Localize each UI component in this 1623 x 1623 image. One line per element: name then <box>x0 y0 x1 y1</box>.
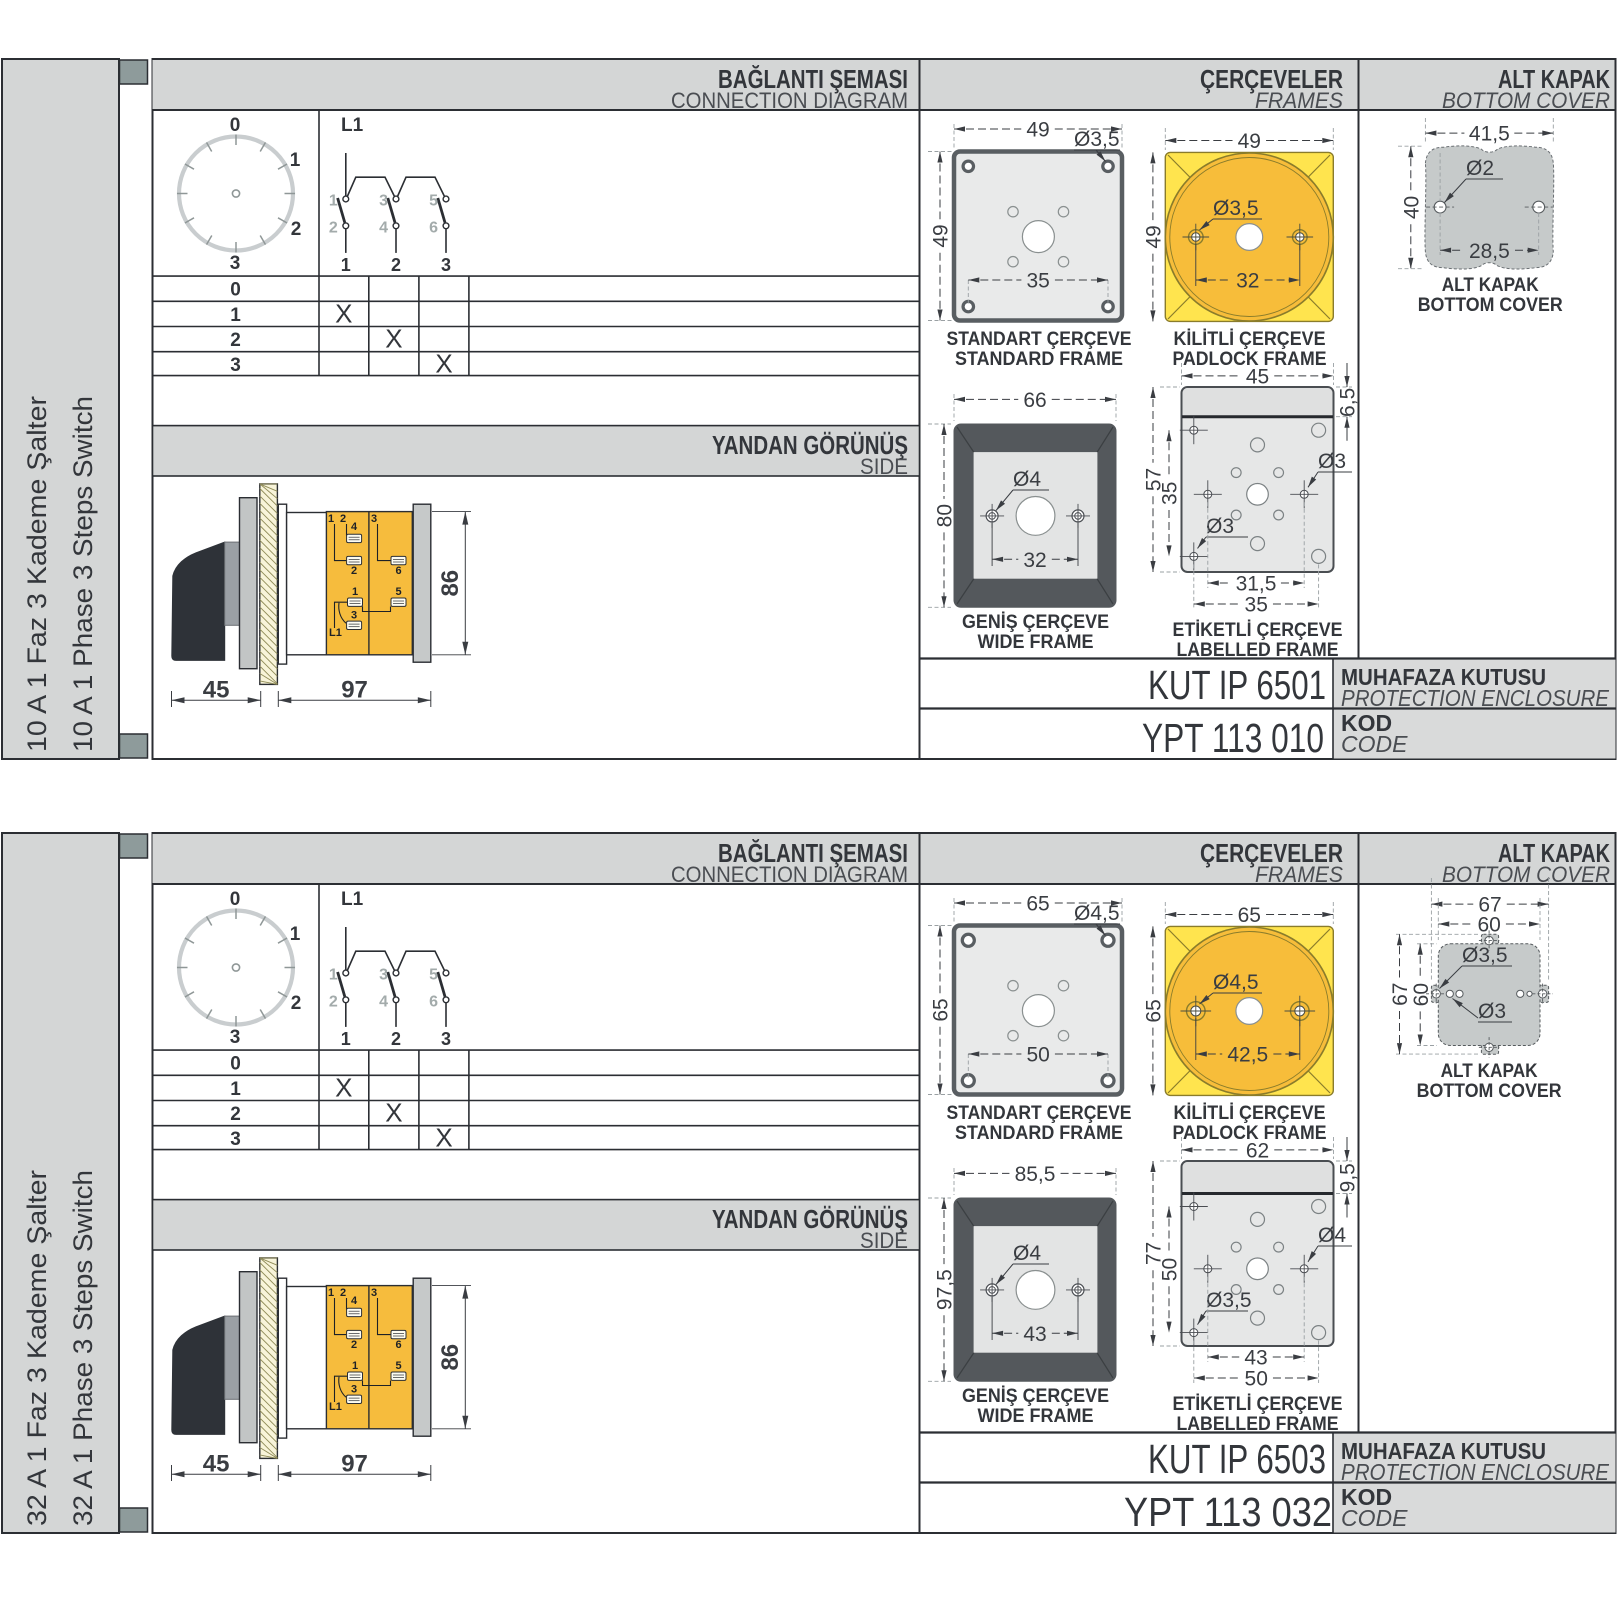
svg-text:3: 3 <box>230 355 241 376</box>
svg-text:Ø4,5: Ø4,5 <box>1213 971 1259 994</box>
svg-text:1: 1 <box>341 255 351 275</box>
svg-text:CONNECTION DIAGRAM: CONNECTION DIAGRAM <box>671 88 908 113</box>
svg-text:STANDARD FRAME: STANDARD FRAME <box>955 349 1123 370</box>
svg-text:2: 2 <box>329 219 338 236</box>
svg-text:4: 4 <box>351 1295 358 1307</box>
svg-text:KİLİTLİ ÇERÇEVE: KİLİTLİ ÇERÇEVE <box>1174 1103 1326 1124</box>
svg-text:0: 0 <box>230 115 241 136</box>
svg-text:1: 1 <box>328 1287 334 1299</box>
svg-text:40: 40 <box>1400 196 1423 219</box>
svg-text:1: 1 <box>352 1360 358 1372</box>
svg-text:2: 2 <box>230 330 241 351</box>
svg-text:GENİŞ ÇERÇEVE: GENİŞ ÇERÇEVE <box>962 1386 1109 1407</box>
svg-text:Ø3,5: Ø3,5 <box>1462 944 1508 967</box>
svg-text:43: 43 <box>1023 1323 1046 1346</box>
svg-text:1: 1 <box>341 1029 351 1049</box>
svg-text:32: 32 <box>1236 270 1259 293</box>
svg-text:3: 3 <box>371 1287 377 1299</box>
svg-text:1: 1 <box>290 150 301 171</box>
svg-text:0: 0 <box>230 889 241 910</box>
svg-text:35: 35 <box>1245 594 1268 617</box>
svg-text:2: 2 <box>329 993 338 1010</box>
svg-text:6: 6 <box>429 993 438 1010</box>
svg-text:SIDE: SIDE <box>860 1228 908 1253</box>
svg-text:Ø3: Ø3 <box>1478 1000 1506 1023</box>
svg-text:0: 0 <box>230 1054 241 1075</box>
svg-text:6,5: 6,5 <box>1337 388 1360 417</box>
svg-text:Ø2: Ø2 <box>1466 157 1494 180</box>
svg-text:Ø3: Ø3 <box>1318 450 1346 473</box>
svg-text:62: 62 <box>1246 1139 1269 1162</box>
svg-text:STANDART ÇERÇEVE: STANDART ÇERÇEVE <box>947 329 1132 350</box>
svg-text:KUT IP 6501: KUT IP 6501 <box>1148 662 1326 708</box>
svg-text:4: 4 <box>379 219 388 236</box>
svg-text:BOTTOM COVER: BOTTOM COVER <box>1418 295 1563 316</box>
svg-text:49: 49 <box>1026 119 1049 142</box>
svg-text:3: 3 <box>441 255 451 275</box>
svg-text:32: 32 <box>1023 549 1046 572</box>
svg-text:65: 65 <box>930 998 953 1021</box>
svg-text:50: 50 <box>1159 1258 1182 1281</box>
svg-text:5: 5 <box>429 193 438 210</box>
svg-text:ETİKETLİ ÇERÇEVE: ETİKETLİ ÇERÇEVE <box>1173 620 1343 641</box>
svg-text:2: 2 <box>291 219 302 240</box>
svg-text:WIDE FRAME: WIDE FRAME <box>978 632 1094 653</box>
svg-text:2: 2 <box>230 1104 241 1125</box>
svg-text:WIDE FRAME: WIDE FRAME <box>978 1406 1094 1427</box>
svg-text:X: X <box>435 1123 452 1153</box>
svg-text:49: 49 <box>1238 130 1261 153</box>
svg-text:97: 97 <box>341 1451 368 1478</box>
svg-text:97: 97 <box>341 677 368 704</box>
svg-text:BOTTOM COVER: BOTTOM COVER <box>1442 862 1610 887</box>
svg-text:1: 1 <box>290 924 301 945</box>
svg-text:67: 67 <box>1389 983 1412 1006</box>
svg-text:4: 4 <box>351 521 358 533</box>
svg-text:L1: L1 <box>329 627 342 639</box>
svg-text:45: 45 <box>203 677 230 704</box>
svg-text:10 A 1 Faz 3 Kademe Şalter: 10 A 1 Faz 3 Kademe Şalter <box>22 396 52 752</box>
svg-text:42,5: 42,5 <box>1227 1044 1268 1067</box>
svg-text:BOTTOM COVER: BOTTOM COVER <box>1442 88 1610 113</box>
svg-text:50: 50 <box>1026 1044 1049 1067</box>
svg-text:31,5: 31,5 <box>1236 573 1277 596</box>
svg-text:1: 1 <box>230 305 241 326</box>
svg-text:Ø4: Ø4 <box>1318 1224 1346 1247</box>
svg-text:L1: L1 <box>341 115 364 136</box>
svg-text:80: 80 <box>934 504 957 527</box>
svg-text:35: 35 <box>1026 270 1049 293</box>
svg-text:45: 45 <box>1246 365 1269 388</box>
svg-text:Ø4: Ø4 <box>1013 468 1041 491</box>
svg-text:4: 4 <box>379 993 388 1010</box>
svg-text:2: 2 <box>391 1029 401 1049</box>
svg-text:CODE: CODE <box>1341 731 1408 757</box>
svg-text:KUT IP 6503: KUT IP 6503 <box>1148 1436 1326 1482</box>
svg-text:65: 65 <box>1238 904 1261 927</box>
svg-text:60: 60 <box>1477 914 1500 937</box>
svg-text:PROTECTION ENCLOSURE: PROTECTION ENCLOSURE <box>1341 1459 1610 1485</box>
svg-text:2: 2 <box>351 1339 357 1351</box>
svg-text:Ø4,5: Ø4,5 <box>1074 902 1120 925</box>
svg-text:9,5: 9,5 <box>1337 1163 1360 1192</box>
svg-text:2: 2 <box>351 565 357 577</box>
svg-text:6: 6 <box>395 565 401 577</box>
svg-text:50: 50 <box>1245 1368 1268 1391</box>
svg-text:32 A 1 Faz 3 Kademe Şalter: 32 A 1 Faz 3 Kademe Şalter <box>22 1170 52 1526</box>
svg-text:L1: L1 <box>341 889 364 910</box>
svg-text:2: 2 <box>391 255 401 275</box>
svg-text:5: 5 <box>395 586 401 598</box>
svg-text:49: 49 <box>1142 225 1165 248</box>
svg-text:2: 2 <box>340 513 346 525</box>
svg-text:PROTECTION ENCLOSURE: PROTECTION ENCLOSURE <box>1341 685 1610 711</box>
svg-text:1: 1 <box>230 1079 241 1100</box>
svg-text:Ø3,5: Ø3,5 <box>1074 128 1120 151</box>
svg-text:ALT KAPAK: ALT KAPAK <box>1442 275 1539 296</box>
svg-text:6: 6 <box>395 1339 401 1351</box>
svg-text:5: 5 <box>429 967 438 984</box>
svg-text:X: X <box>385 324 402 354</box>
svg-text:65: 65 <box>1142 999 1165 1022</box>
svg-text:YPT 113 032: YPT 113 032 <box>1124 1489 1332 1534</box>
svg-text:Ø3: Ø3 <box>1206 515 1234 538</box>
svg-text:60: 60 <box>1410 983 1433 1006</box>
svg-text:85,5: 85,5 <box>1015 1163 1056 1186</box>
svg-text:6: 6 <box>429 219 438 236</box>
svg-text:10 A 1 Phase 3 Steps Switch: 10 A 1 Phase 3 Steps Switch <box>68 396 98 752</box>
svg-text:1: 1 <box>329 967 338 984</box>
svg-text:97,5: 97,5 <box>934 1269 957 1310</box>
svg-text:X: X <box>335 299 352 329</box>
svg-text:65: 65 <box>1026 893 1049 916</box>
svg-text:GENİŞ ÇERÇEVE: GENİŞ ÇERÇEVE <box>962 612 1109 633</box>
svg-text:X: X <box>335 1073 352 1103</box>
svg-text:45: 45 <box>203 1451 230 1478</box>
svg-text:Ø3,5: Ø3,5 <box>1206 1289 1252 1312</box>
svg-text:FRAMES: FRAMES <box>1255 88 1343 113</box>
svg-text:3: 3 <box>230 253 241 274</box>
svg-text:3: 3 <box>351 610 357 622</box>
svg-text:2: 2 <box>291 993 302 1014</box>
svg-text:3: 3 <box>371 513 377 525</box>
svg-text:0: 0 <box>230 280 241 301</box>
svg-text:32 A 1 Phase 3 Steps Switch: 32 A 1 Phase 3 Steps Switch <box>68 1170 98 1526</box>
svg-text:X: X <box>435 349 452 379</box>
svg-text:X: X <box>385 1098 402 1128</box>
svg-text:28,5: 28,5 <box>1469 240 1510 263</box>
svg-text:STANDARD FRAME: STANDARD FRAME <box>955 1123 1123 1144</box>
svg-text:3: 3 <box>441 1029 451 1049</box>
svg-text:86: 86 <box>437 570 464 597</box>
svg-text:2: 2 <box>340 1287 346 1299</box>
svg-text:35: 35 <box>1159 482 1182 505</box>
svg-text:3: 3 <box>230 1027 241 1048</box>
svg-text:L1: L1 <box>329 1401 342 1413</box>
svg-text:KİLİTLİ ÇERÇEVE: KİLİTLİ ÇERÇEVE <box>1174 329 1326 350</box>
svg-text:CONNECTION DIAGRAM: CONNECTION DIAGRAM <box>671 862 908 887</box>
svg-text:3: 3 <box>351 1384 357 1396</box>
svg-text:FRAMES: FRAMES <box>1255 862 1343 887</box>
svg-text:43: 43 <box>1244 1347 1267 1370</box>
svg-text:STANDART ÇERÇEVE: STANDART ÇERÇEVE <box>947 1103 1132 1124</box>
svg-text:SIDE: SIDE <box>860 454 908 479</box>
svg-text:86: 86 <box>437 1344 464 1371</box>
svg-text:ALT KAPAK: ALT KAPAK <box>1441 1061 1538 1082</box>
svg-text:3: 3 <box>379 967 388 984</box>
svg-text:1: 1 <box>329 193 338 210</box>
svg-text:1: 1 <box>352 586 358 598</box>
svg-text:CODE: CODE <box>1341 1505 1408 1531</box>
svg-text:5: 5 <box>395 1360 401 1372</box>
svg-text:BOTTOM COVER: BOTTOM COVER <box>1417 1081 1562 1102</box>
svg-text:1: 1 <box>328 513 334 525</box>
svg-text:41,5: 41,5 <box>1469 123 1510 146</box>
svg-text:Ø4: Ø4 <box>1013 1242 1041 1265</box>
svg-text:3: 3 <box>379 193 388 210</box>
svg-text:YPT 113 010: YPT 113 010 <box>1142 715 1324 760</box>
svg-text:Ø3,5: Ø3,5 <box>1213 197 1259 220</box>
svg-text:3: 3 <box>230 1129 241 1150</box>
svg-text:ETİKETLİ ÇERÇEVE: ETİKETLİ ÇERÇEVE <box>1173 1394 1343 1415</box>
svg-text:66: 66 <box>1023 389 1046 412</box>
svg-text:49: 49 <box>930 224 953 247</box>
